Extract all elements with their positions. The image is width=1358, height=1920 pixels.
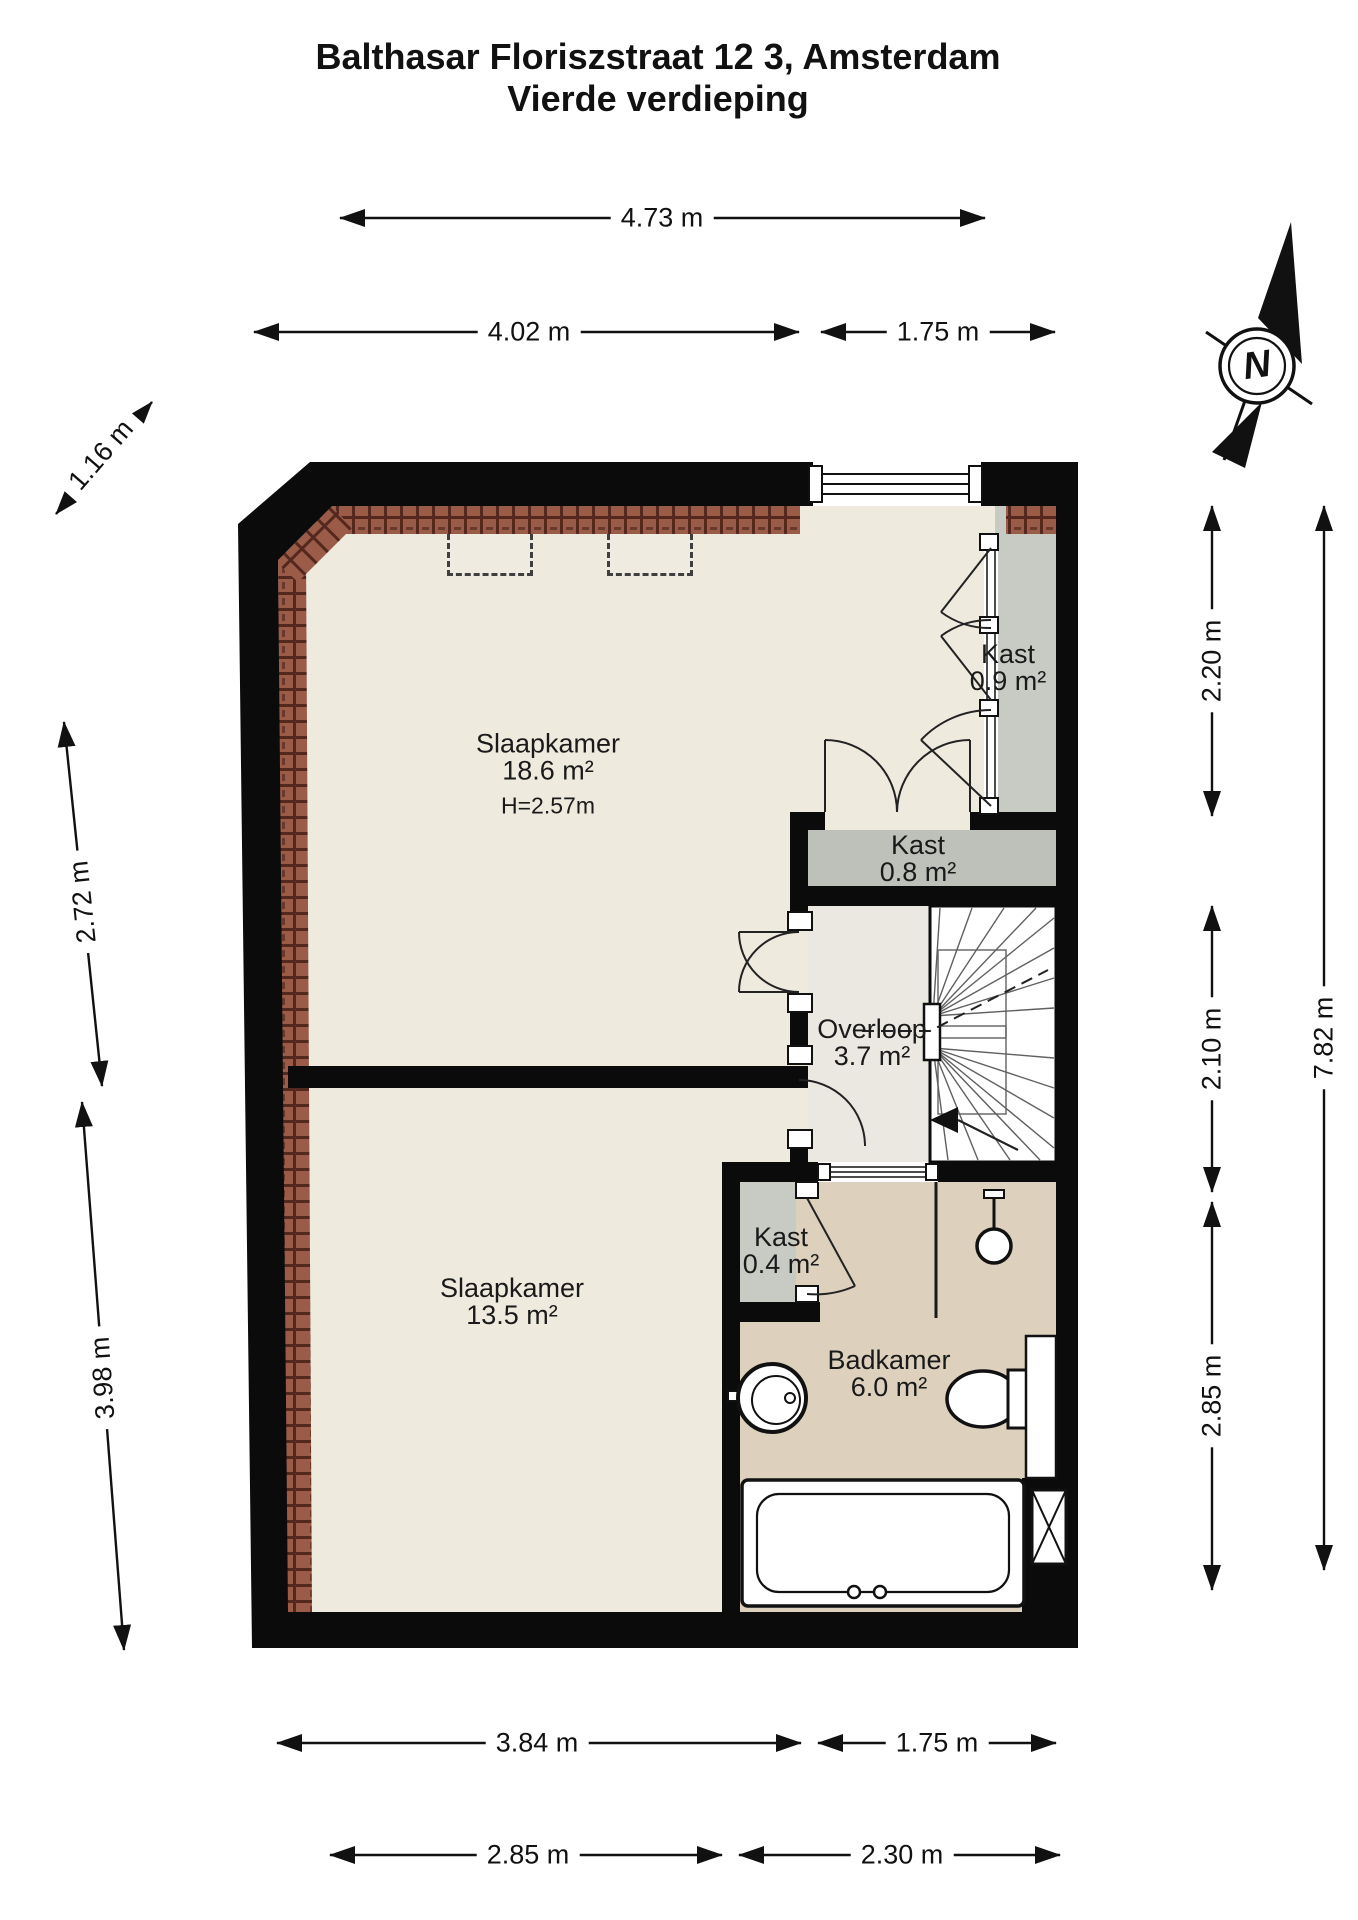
room-label-slaapkamer-2: Slaapkamer 13.5 m² [440,1275,584,1329]
dim-top-right: 1.75 m [887,316,990,349]
dim-bottom-right: 1.75 m [886,1727,989,1760]
shaft-icon [1032,1490,1066,1564]
dim-right-upper: 2.20 m [1196,610,1229,713]
compass-north-label: N [1240,343,1273,389]
room-label-badkamer: Badkamer 6.0 m² [827,1347,950,1401]
plan-title: Balthasar Floriszstraat 12 3, Amsterdam … [0,36,1316,120]
room-label-kast-1: Kast 0.9 m² [970,641,1047,695]
room-label-slaapkamer-1: Slaapkamer 18.6 m² H=2.57m [476,731,620,820]
dim-left-lower: 3.98 m [83,1326,123,1431]
plan-title-address: Balthasar Floriszstraat 12 3, Amsterdam [0,36,1316,78]
plan-title-floor: Vierde verdieping [0,78,1316,120]
ceiling-height-label: H=2.57m [476,793,620,820]
bath-ledge [1026,1336,1056,1478]
dim-top-total: 4.73 m [611,202,714,235]
plan-drawing [0,0,1358,1920]
shower-head-icon [977,1190,1011,1263]
dim-bottom-right-2: 2.30 m [851,1839,954,1872]
bathtub-icon [742,1480,1024,1606]
badkamer-door-track [818,1162,938,1182]
dim-bottom-left-2: 2.85 m [477,1839,580,1872]
floorplan-page: Balthasar Floriszstraat 12 3, Amsterdam … [0,0,1358,1920]
room-label-kast-3: Kast 0.4 m² [743,1224,820,1278]
room-label-overloop: Overloop 3.7 m² [817,1016,927,1070]
dim-top-left: 4.02 m [478,316,581,349]
dim-right-middle: 2.10 m [1196,998,1229,1101]
toilet-icon [947,1370,1030,1428]
dim-bottom-left: 3.84 m [486,1727,589,1760]
dim-right-total: 7.82 m [1308,987,1341,1090]
dim-right-lower: 2.85 m [1196,1345,1229,1448]
top-window [809,462,982,506]
room-label-kast-2: Kast 0.8 m² [880,832,957,886]
